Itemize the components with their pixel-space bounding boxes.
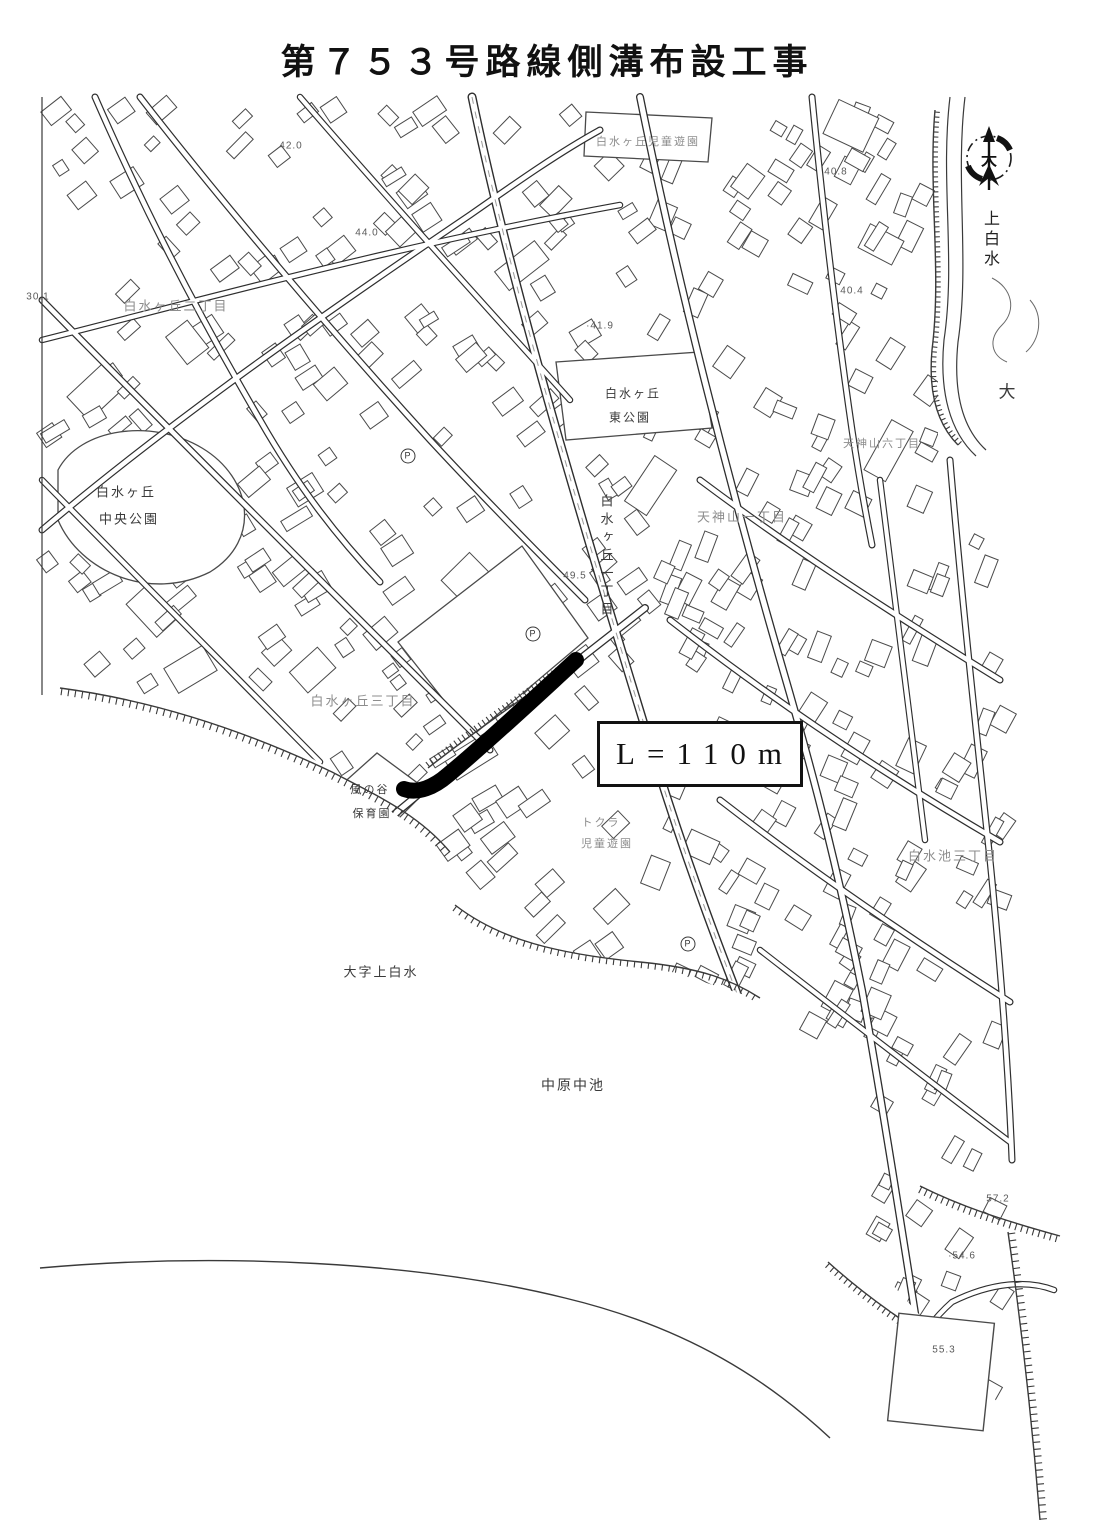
base-map bbox=[0, 0, 1094, 1527]
water-layer bbox=[40, 97, 1054, 1521]
page-title: 第７５３号路線側溝布設工事 bbox=[0, 34, 1094, 85]
compass-center-char: 大 bbox=[981, 146, 997, 170]
drawing-sheet: 第７５３号路線側溝布設工事 白水ヶ丘児童遊園白水ヶ丘二丁目白水ヶ丘中央公園白水ヶ… bbox=[0, 0, 1094, 1527]
route-length-label: L=110m bbox=[616, 736, 794, 772]
compass-place-name: 上白水 bbox=[977, 210, 1001, 270]
north-arrow: 大 上白水 bbox=[952, 112, 1026, 282]
route-length-badge: L=110m bbox=[597, 721, 803, 787]
